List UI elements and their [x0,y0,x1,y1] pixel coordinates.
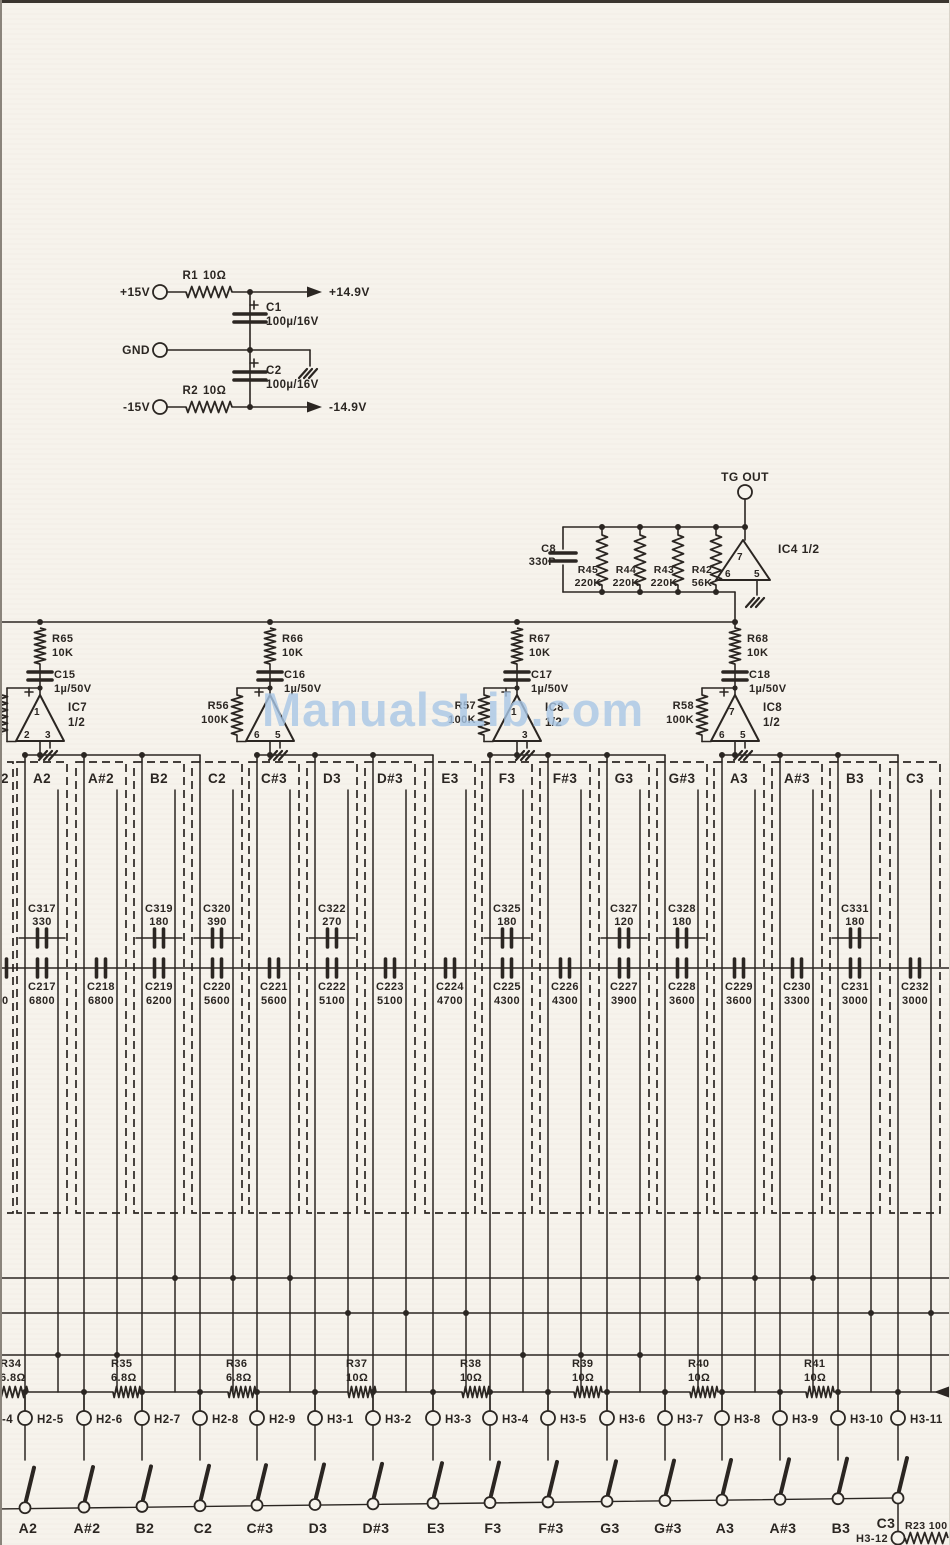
label-R66: R66 [282,633,303,645]
cap-value: 270 [322,916,342,928]
switch-arm [666,1461,674,1494]
connector-H2-7 [135,1411,149,1425]
terminal-minus15v [153,400,167,414]
junction-dot [37,619,43,625]
label-stage-ic: IC7 [68,702,87,714]
switch-D#3 [368,1498,379,1509]
cap-label: C231 [841,981,869,993]
junction-dot [732,619,738,625]
connector-H2-6 [77,1411,91,1425]
cap-label: C322 [318,903,346,915]
junction-dot [345,1310,351,1316]
label-stage-ic-half: 1/2 [545,717,562,729]
label-bus-resistor-value: 10Ω [346,1372,368,1384]
label-C17: C17 [531,669,552,681]
cap-label: C232 [901,981,929,993]
label-stage-ic: IC8 [763,702,782,714]
pin-label: 7 [737,552,743,563]
connector-label: H3-7 [677,1414,704,1426]
label-tg-out: TG OUT [721,470,769,484]
label-C18: C18 [749,669,770,681]
label-bus-resistor-value: 10Ω [460,1372,482,1384]
connector-label: H3-8 [734,1414,761,1426]
cap-value: 4700 [437,995,463,1007]
note-label: A#3 [784,771,810,786]
switch-rail [0,1498,898,1509]
junction-dot [514,619,520,625]
note-label: A3 [730,771,748,786]
label-R65-value: 10K [52,647,73,659]
connector-label: H3-6 [619,1414,646,1426]
cap-label: C229 [725,981,753,993]
label-c1: C1 [266,302,282,314]
connector-label: H2-8 [212,1414,239,1426]
switch-arm [143,1466,151,1499]
cap-label: C223 [376,981,404,993]
junction-dot [463,1310,469,1316]
arrow-left-icon [934,1387,949,1398]
resistor-bus-5 [574,1387,602,1398]
connector-label: H2-5 [37,1414,64,1426]
connector-label: H3-4 [502,1414,529,1426]
cap-value: 3000 [842,995,868,1007]
resistor-bus-1 [113,1387,141,1398]
label-tg-r0-value: 220K [575,577,602,589]
label-c2-value: 100µ/16V [266,379,319,391]
switch-A3 [717,1494,728,1505]
terminal-gnd [153,343,167,357]
switch-G3 [602,1496,613,1507]
cap-label: C224 [436,981,464,993]
connector-label-partial: -4 [2,1414,13,1426]
label-c2: C2 [266,365,282,377]
junction-dot [742,524,748,530]
cap-value: 4300 [494,995,520,1007]
switch-label: D3 [309,1520,328,1536]
cap-value: 390 [207,916,227,928]
cap-label: C331 [841,903,869,915]
scan-edge-top [0,0,950,3]
label-r1-value: 10Ω [203,270,226,282]
label-bus-resistor-value: 10Ω [572,1372,594,1384]
label-bus-resistor-value: 10Ω [688,1372,710,1384]
label-C16-value: 1µ/50V [284,683,322,695]
switch-D3 [310,1499,321,1510]
cap-value: 3900 [611,995,637,1007]
switch-label: F3 [484,1520,501,1536]
junction-dot [752,1275,758,1281]
resistor-R57 [479,695,490,735]
pin-label: 6 [254,730,260,741]
junction-dot [810,1275,816,1281]
label-stage-ic-half: 1/2 [68,717,85,729]
connector-H3-3 [426,1411,440,1425]
label-bus-resistor: R38 [460,1358,481,1370]
connector-label: H3-11 [910,1414,943,1426]
switch-C3 [893,1493,904,1504]
cap-value: 120 [614,916,634,928]
pin-label: 3 [45,730,51,741]
connector-label: H2-9 [269,1414,296,1426]
note-label: F#3 [553,771,578,786]
note-label: D#3 [377,771,403,786]
resistor-R66 [265,628,276,664]
cap-label: C325 [493,903,521,915]
connector-label: H3-2 [385,1414,412,1426]
switch-A#2 [79,1502,90,1513]
connector-label: H2-6 [96,1414,123,1426]
switch-A2 [20,1502,31,1513]
cap-label: C228 [668,981,696,993]
label-plus14-9v: +14.9V [329,285,370,299]
switch-G#3 [660,1495,671,1506]
label-plus15v: +15V [120,285,150,299]
junction-dot [230,1275,236,1281]
junction-dot [928,1310,934,1316]
label-tg-r0: R45 [578,564,598,576]
resistor-R65 [35,628,46,664]
cap-label-partial: 0 [2,995,9,1007]
cap-value: 5100 [377,995,403,1007]
label-R68: R68 [747,633,768,645]
switch-label: G3 [600,1520,619,1536]
resistor-R67 [512,628,523,664]
switch-label: D#3 [363,1520,390,1536]
junction-dot [172,1275,178,1281]
connector-H2-5 [18,1411,32,1425]
resistor-bus-7 [806,1387,834,1398]
cap-value: 5600 [261,995,287,1007]
switch-label: C#3 [247,1520,274,1536]
cap-value: 3000 [902,995,928,1007]
cap-value: 330 [32,916,52,928]
resistor-bus-2 [228,1387,256,1398]
junction-dot [520,1352,526,1358]
label-bus-resistor-value: 6.8Ω [226,1372,252,1384]
cap-value: 5100 [319,995,345,1007]
label-bus-resistor-value: 10Ω [804,1372,826,1384]
switch-B2 [137,1501,148,1512]
label-stage-ic-half: 1/2 [763,717,780,729]
terminal-tg-out [738,485,752,499]
junction-dot [287,1275,293,1281]
label-gnd: GND [122,343,150,357]
note-label: G#3 [669,771,696,786]
cap-value: 180 [497,916,517,928]
cap-value: 180 [845,916,865,928]
switch-C#3 [252,1500,263,1511]
switch-F#3 [543,1496,554,1507]
cap-label: C327 [610,903,638,915]
scan-edge-left [0,0,2,1545]
label-bus-resistor: R41 [804,1358,825,1370]
connector-H3-6 [600,1411,614,1425]
label-minus14-9v: -14.9V [329,400,367,414]
junction-dot [403,1310,409,1316]
label-bus-resistor-value: 6.8Ω [111,1372,137,1384]
label-c8-value: 330P [529,556,556,568]
label-ic4: IC4 1/2 [778,542,820,556]
cap-label: C225 [493,981,521,993]
connector-label: H3-9 [792,1414,819,1426]
switch-arm [839,1459,847,1492]
connector-H3-8 [715,1411,729,1425]
cap-label: C227 [610,981,638,993]
connector-H3-2 [366,1411,380,1425]
cap-label: C317 [28,903,56,915]
cap-value: 3600 [726,995,752,1007]
connector-H3-9 [773,1411,787,1425]
switch-arm [723,1460,731,1493]
switch-arm [549,1462,557,1495]
connector-H2-8 [193,1411,207,1425]
connector-label: H2-7 [154,1414,181,1426]
label-bus-resistor: R35 [111,1358,132,1370]
opamp-stage-2 [493,695,541,741]
switch-label: A#2 [74,1520,101,1536]
label-R66-value: 10K [282,647,303,659]
switch-B3 [833,1493,844,1504]
label-bus-resistor: R39 [572,1358,593,1370]
label-R56-value: 100K [201,714,229,726]
label-R57: R57 [455,700,476,712]
note-label: G3 [615,771,634,786]
cap-label: C220 [203,981,231,993]
note-label: C2 [208,771,226,786]
resistor-R68 [730,628,741,664]
connector-H3-4 [483,1411,497,1425]
label-tg-r3: R42 [692,564,712,576]
cap-value: 180 [149,916,169,928]
cap-label: C217 [28,981,56,993]
label-tg-r2: R43 [654,564,674,576]
schematic-drawing: +15VR110Ω+14.9VC1100µ/16VGNDC2100µ/16V-1… [0,0,950,1545]
label-r2: R2 [182,385,198,397]
connector-H2-9 [250,1411,264,1425]
cap-label: C226 [551,981,579,993]
switch-arm [201,1466,209,1499]
note-label: B3 [846,771,864,786]
connector-label: H3-10 [850,1414,883,1426]
label-C15: C15 [54,669,75,681]
label-R67-value: 10K [529,647,550,659]
switch-C2 [195,1500,206,1511]
switch-arm [374,1464,382,1497]
label-tg-r3-value: 56K [692,577,712,589]
switch-label: B2 [136,1520,155,1536]
switch-arm [434,1463,442,1496]
note-label: C#3 [261,771,287,786]
switch-A#3 [775,1494,786,1505]
connector-H3-5 [541,1411,555,1425]
schematic-scan: +15VR110Ω+14.9VC1100µ/16VGNDC2100µ/16V-1… [0,0,950,1545]
cap-label: C222 [318,981,346,993]
label-c8: C8 [541,543,556,555]
label-tg-r1: R44 [616,564,636,576]
cap-value: 3300 [784,995,810,1007]
cap-value: 6200 [146,995,172,1007]
switch-F3 [485,1497,496,1508]
resistor-bus-4 [462,1387,490,1398]
pin-label: 6 [725,569,731,580]
switch-E3 [428,1498,439,1509]
resistor-bus-6 [690,1387,718,1398]
label-r23: R23 100 [905,1520,948,1532]
label-tg-r2-value: 220K [651,577,678,589]
resistor-r2 [186,402,232,413]
cap-value: 4300 [552,995,578,1007]
pin-label: 2 [24,730,30,741]
junction-dot [637,1352,643,1358]
cap-label: C218 [87,981,115,993]
cap-label: C221 [260,981,288,993]
connector-label: H3-5 [560,1414,587,1426]
note-label: A2 [33,771,51,786]
label-h3-12: H3-12 [856,1533,888,1545]
cap-value: 6800 [29,995,55,1007]
label-R67: R67 [529,633,550,645]
note-label: E3 [441,771,458,786]
note-label: A#2 [88,771,114,786]
switch-label: C2 [194,1520,213,1536]
junction-dot [267,619,273,625]
label-bus-resistor: R37 [346,1358,367,1370]
junction-dot [55,1352,61,1358]
schematic-generated: +15VR110Ω+14.9VC1100µ/16VGNDC2100µ/16V-1… [0,270,950,1545]
switch-arm [85,1467,93,1500]
switch-arm [491,1463,499,1496]
arrow-right-icon [307,402,322,413]
label-R56: R56 [208,700,229,712]
note-label: C3 [906,771,924,786]
label-R65: R65 [52,633,73,645]
switch-label: A#3 [770,1520,797,1536]
cap-value: 6800 [88,995,114,1007]
connector-H3-1 [308,1411,322,1425]
label-C17-value: 1µ/50V [531,683,569,695]
cap-label: C320 [203,903,231,915]
label-C18-value: 1µ/50V [749,683,787,695]
label-r2-value: 10Ω [203,385,226,397]
note-label: B2 [150,771,168,786]
label-c1-value: 100µ/16V [266,316,319,328]
connector-label: H3-1 [327,1414,354,1426]
label-bus-resistor: R36 [226,1358,247,1370]
resistor-R56 [232,695,243,735]
pin-label: 1 [34,707,40,718]
cap-label: C319 [145,903,173,915]
switch-label: F#3 [538,1520,563,1536]
label-tg-r1-value: 220K [613,577,640,589]
switch-label: E3 [427,1520,445,1536]
note-label-partial: 2 [1,771,9,786]
pin-label: 3 [522,730,528,741]
cap-label: C219 [145,981,173,993]
cap-value: 180 [672,916,692,928]
switch-arm [26,1468,34,1501]
connector-h3-12 [892,1532,905,1545]
label-R68-value: 10K [747,647,768,659]
cap-label: C328 [668,903,696,915]
resistor-R58 [697,695,708,735]
pin-label: 5 [275,730,281,741]
cap-label: C230 [783,981,811,993]
pin-label: 5 [740,730,746,741]
label-stage-ic: IC8 [545,702,564,714]
connector-H3-10 [831,1411,845,1425]
switch-label: A2 [19,1520,38,1536]
switch-label: B3 [832,1520,851,1536]
label-R57-value: 100K [448,714,476,726]
switch-label: C3 [877,1515,896,1531]
label-bus-resistor: R40 [688,1358,709,1370]
resistor-r1 [186,287,232,298]
pin-label: 7 [729,707,735,718]
label-bus-resistor: R34 [0,1358,22,1370]
pin-label: 6 [719,730,725,741]
label-C16: C16 [284,669,305,681]
label-bus-resistor-value: 6.8Ω [0,1372,26,1384]
switch-label: G#3 [654,1520,682,1536]
switch-arm [316,1465,324,1498]
label-C15-value: 1µ/50V [54,683,92,695]
arrow-right-icon [307,287,322,298]
label-minus15v: -15V [123,400,150,414]
switch-arm [899,1458,907,1491]
connector-label: H3-3 [445,1414,472,1426]
connector-H3-11 [891,1411,905,1425]
connector-H3-7 [658,1411,672,1425]
switch-label: A3 [716,1520,735,1536]
pin-label: 5 [754,569,760,580]
note-label: D3 [323,771,341,786]
switch-arm [608,1461,616,1494]
switch-arm [258,1465,266,1498]
terminal-plus15v [153,285,167,299]
junction-dot [247,404,253,410]
resistor-r23 [905,1533,948,1544]
pin-label: 1 [511,707,517,718]
junction-dot [695,1275,701,1281]
cap-value: 5600 [204,995,230,1007]
note-label: F3 [499,771,516,786]
label-r1: R1 [182,270,198,282]
label-R58-value: 100K [666,714,694,726]
junction-dot [868,1310,874,1316]
label-R58: R58 [673,700,694,712]
cap-value: 3600 [669,995,695,1007]
switch-arm [781,1459,789,1492]
